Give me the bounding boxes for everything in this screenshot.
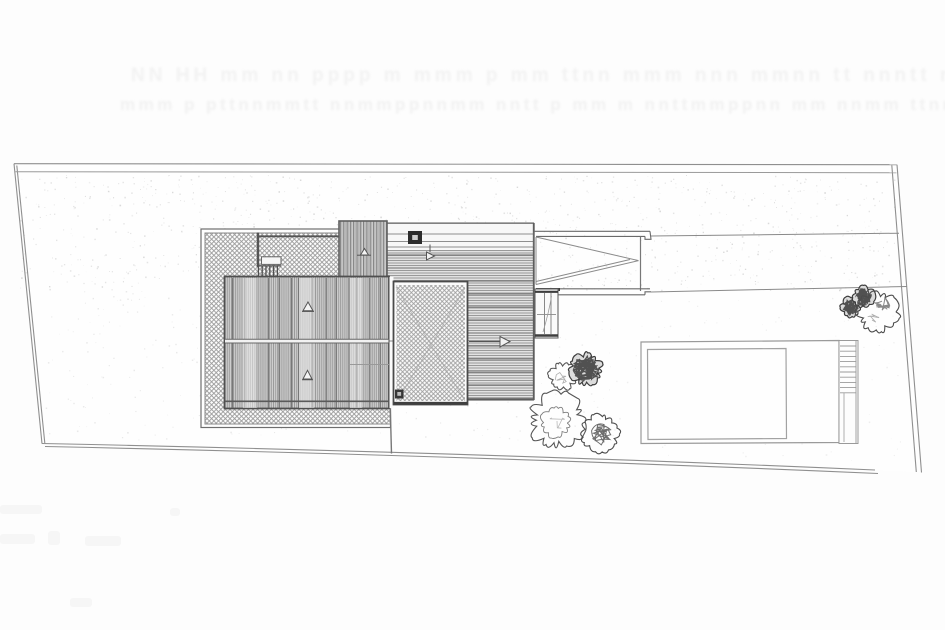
svg-text:NN HH mm nn pppp m mmm p m: NN HH mm nn pppp m mmm p mm ttnn mmm nnn… bbox=[131, 65, 945, 86]
svg-text:mmm p pttnnmmtt nnmmppnnmm nn: mmm p pttnnmmtt nnmmppnnmm nntt p mm m n… bbox=[120, 95, 945, 114]
